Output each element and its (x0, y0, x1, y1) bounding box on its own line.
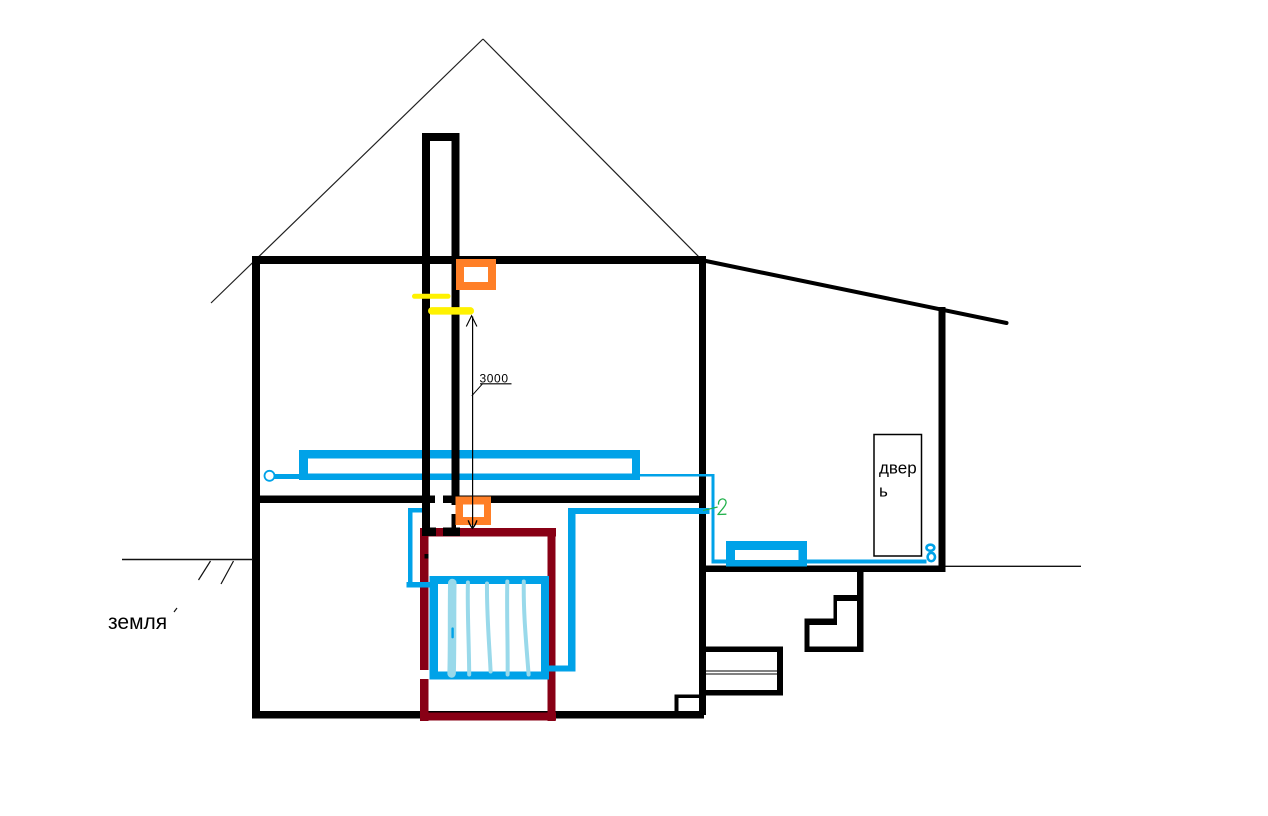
svg-text:земля: земля (108, 611, 167, 634)
svg-text:двер: двер (879, 459, 917, 478)
svg-text:ь: ь (879, 482, 888, 501)
